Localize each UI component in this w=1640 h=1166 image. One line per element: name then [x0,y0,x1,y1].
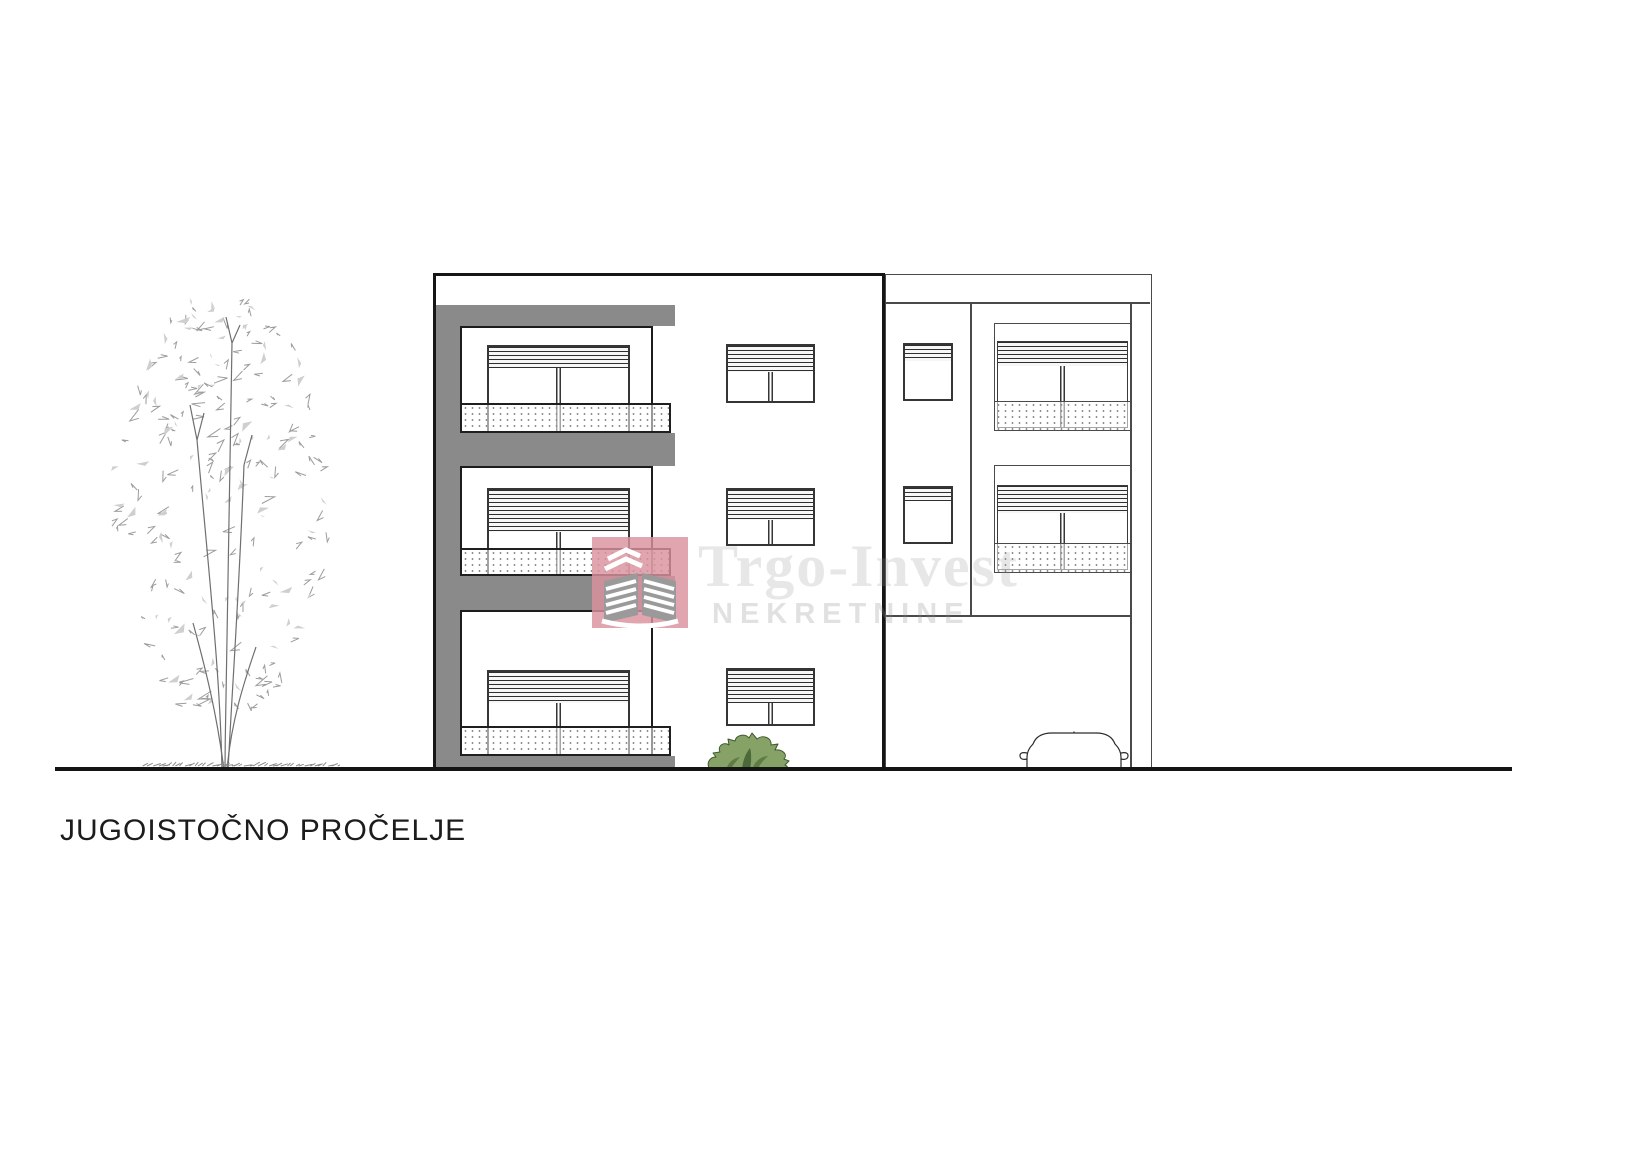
facade-window-floor3 [726,344,815,403]
window-railing [995,401,1130,430]
roller-shutter [728,670,813,705]
stair-window-floor3 [903,343,953,401]
ground-line [55,767,1512,771]
roller-shutter [998,486,1127,515]
car-outline [1019,731,1129,769]
roller-shutter [489,490,628,534]
roller-shutter [489,347,628,370]
window-mullion [768,372,773,401]
facade-window-floor1 [726,668,815,726]
drawing-title: JUGOISTOČNO PROČELJE [60,814,466,848]
tree-ground-hatch [143,762,340,766]
elevation-sheet: { "page": { "title": "JUGOISTOČNO PROČEL… [0,0,1640,1166]
parapet-line [886,302,1150,304]
balcony-railing-floor1 [460,726,671,756]
window-mullion [768,703,773,724]
balcony-slab-1 [436,433,675,466]
roller-shutter [728,490,813,522]
right-window-floor3 [994,323,1131,431]
watermark-subtitle: NEKRETNINE [712,598,971,631]
facade-accent-spine [436,305,460,770]
window-panes [728,372,813,401]
building-right-block [885,274,1152,770]
tree-leaves [111,298,329,711]
trgo-invest-logo [592,537,688,628]
balcony-slab-top [436,305,675,326]
balcony-railing-floor3 [460,403,671,433]
watermark-company: Trgo-Invest [698,532,1019,601]
window-pane [905,361,951,399]
roller-shutter [728,346,813,374]
building-left-block [433,273,885,770]
window-panes [728,703,813,724]
tree-sketch [100,285,340,773]
roller-shutter [489,672,628,705]
roller-shutter [998,342,1127,368]
bush [704,728,792,770]
